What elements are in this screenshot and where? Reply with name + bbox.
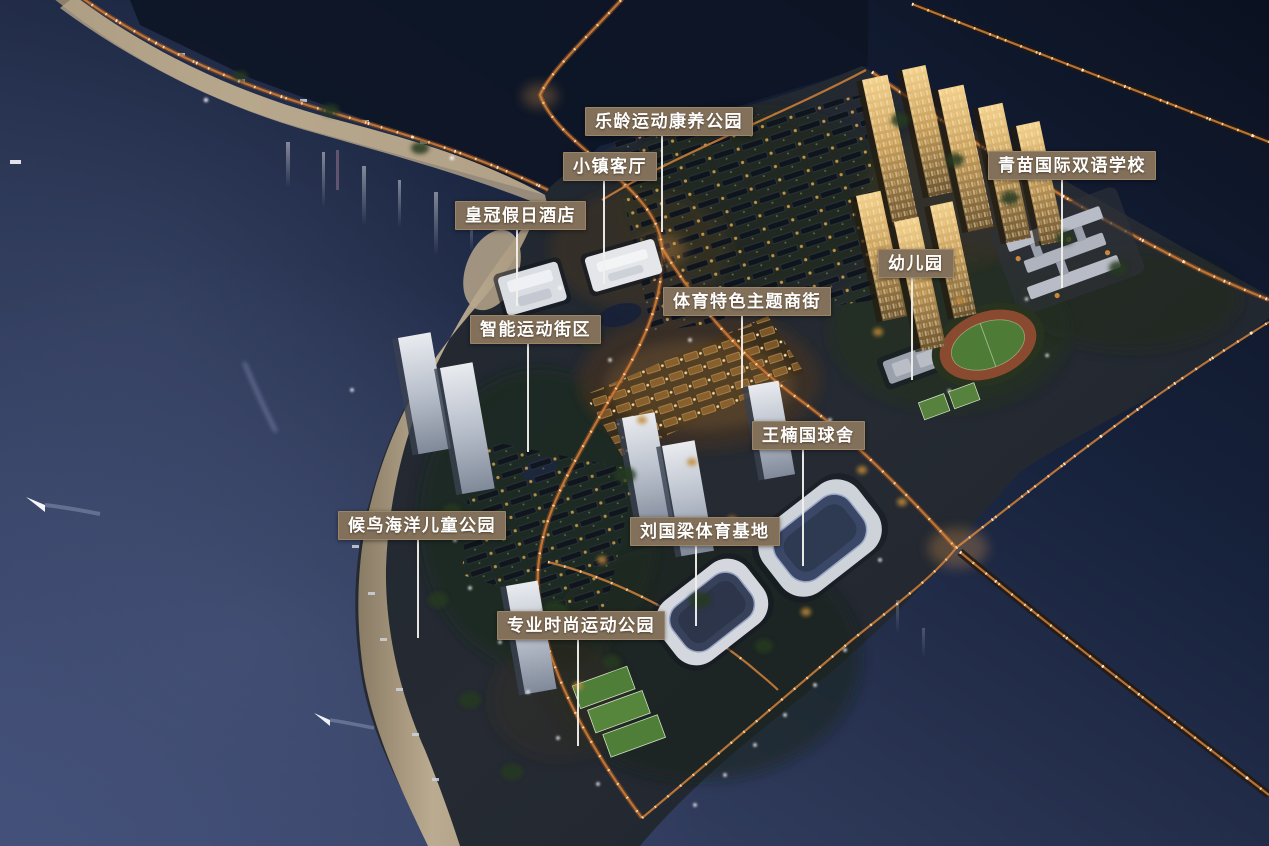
map-label-kindergarten: 幼儿园 — [878, 249, 954, 278]
map-label-wangnan-table-tennis-house: 王楠国球舍 — [752, 421, 865, 450]
map-label-migratory-bird-ocean-children-park: 候鸟海洋儿童公园 — [338, 511, 506, 540]
masterplan-canvas: 乐龄运动康养公园小镇客厅皇冠假日酒店青苗国际双语学校体育特色主题商街智能运动街区… — [0, 0, 1269, 846]
map-label-leling-sports-wellness-park: 乐龄运动康养公园 — [585, 107, 753, 136]
map-label-crowne-plaza-hotel: 皇冠假日酒店 — [455, 201, 586, 230]
map-label-sports-themed-shopping-street: 体育特色主题商街 — [663, 287, 831, 316]
map-label-town-living-room: 小镇客厅 — [563, 152, 657, 181]
map-label-liuguoliang-sports-base: 刘国梁体育基地 — [630, 517, 780, 546]
map-label-qingmiao-bilingual-school: 青苗国际双语学校 — [988, 151, 1156, 180]
labels-layer: 乐龄运动康养公园小镇客厅皇冠假日酒店青苗国际双语学校体育特色主题商街智能运动街区… — [0, 0, 1269, 846]
map-label-smart-sports-block: 智能运动街区 — [470, 315, 601, 344]
map-label-professional-fashion-sports-park: 专业时尚运动公园 — [497, 611, 665, 640]
